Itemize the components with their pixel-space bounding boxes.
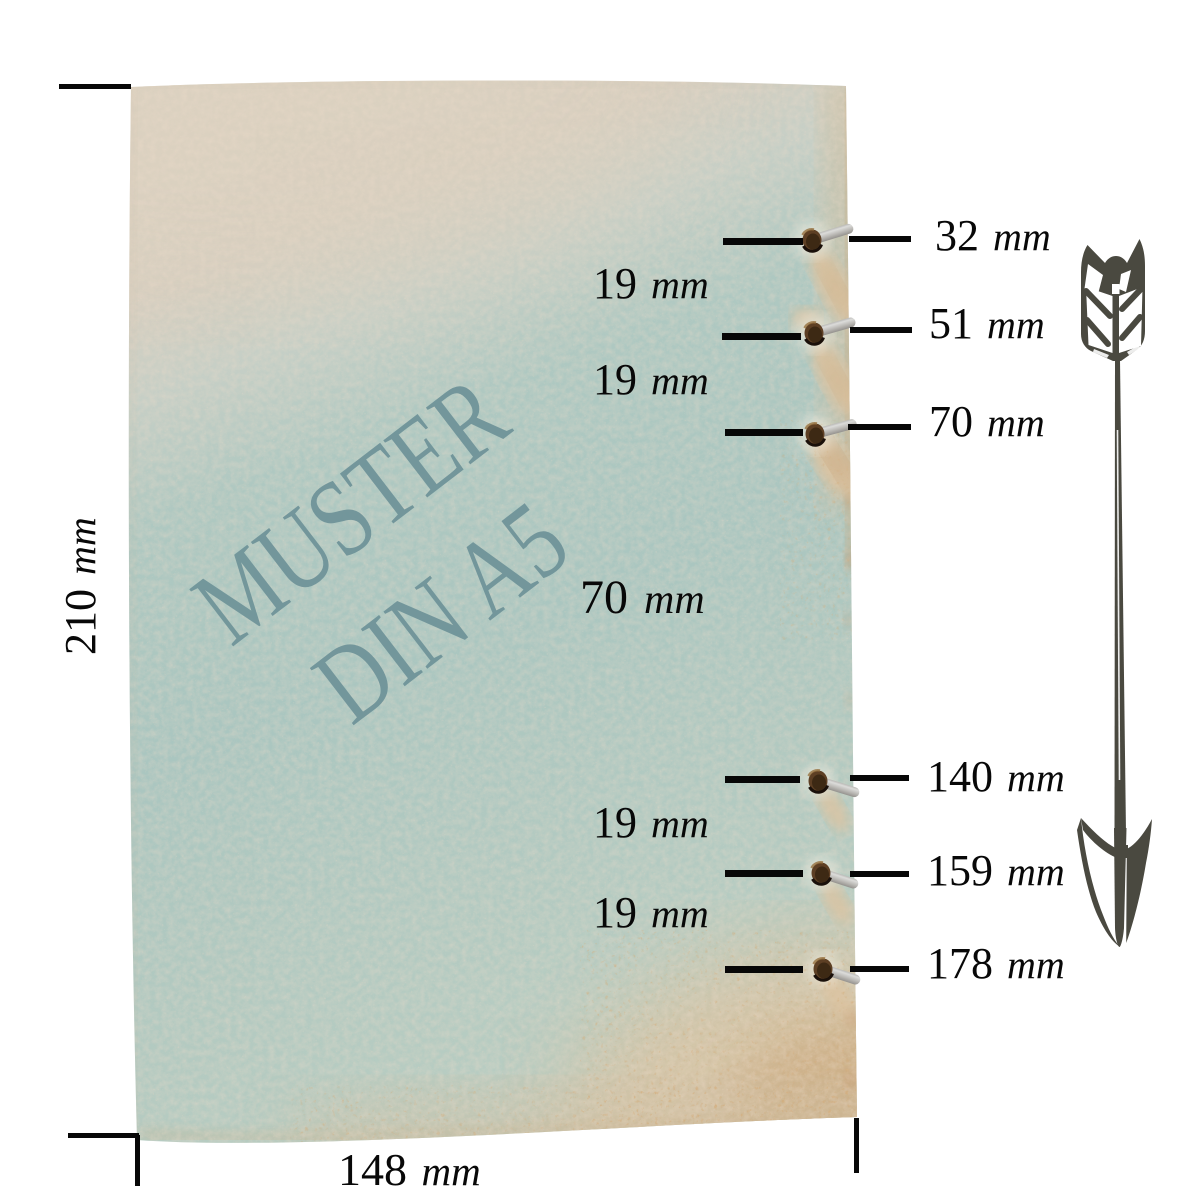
svg-text:19 mm: 19 mm xyxy=(593,798,709,847)
svg-text:19 mm: 19 mm xyxy=(593,259,709,308)
svg-text:140 mm: 140 mm xyxy=(927,752,1065,801)
svg-text:178 mm: 178 mm xyxy=(927,939,1065,988)
svg-text:148 mm: 148 mm xyxy=(338,1144,481,1195)
svg-text:19 mm: 19 mm xyxy=(593,888,709,937)
svg-text:32 mm: 32 mm xyxy=(935,211,1051,260)
svg-text:51 mm: 51 mm xyxy=(929,299,1045,348)
svg-text:70 mm: 70 mm xyxy=(929,397,1045,446)
svg-text:210 mm: 210 mm xyxy=(56,517,105,655)
svg-text:159 mm: 159 mm xyxy=(927,846,1065,895)
svg-text:19 mm: 19 mm xyxy=(593,355,709,404)
